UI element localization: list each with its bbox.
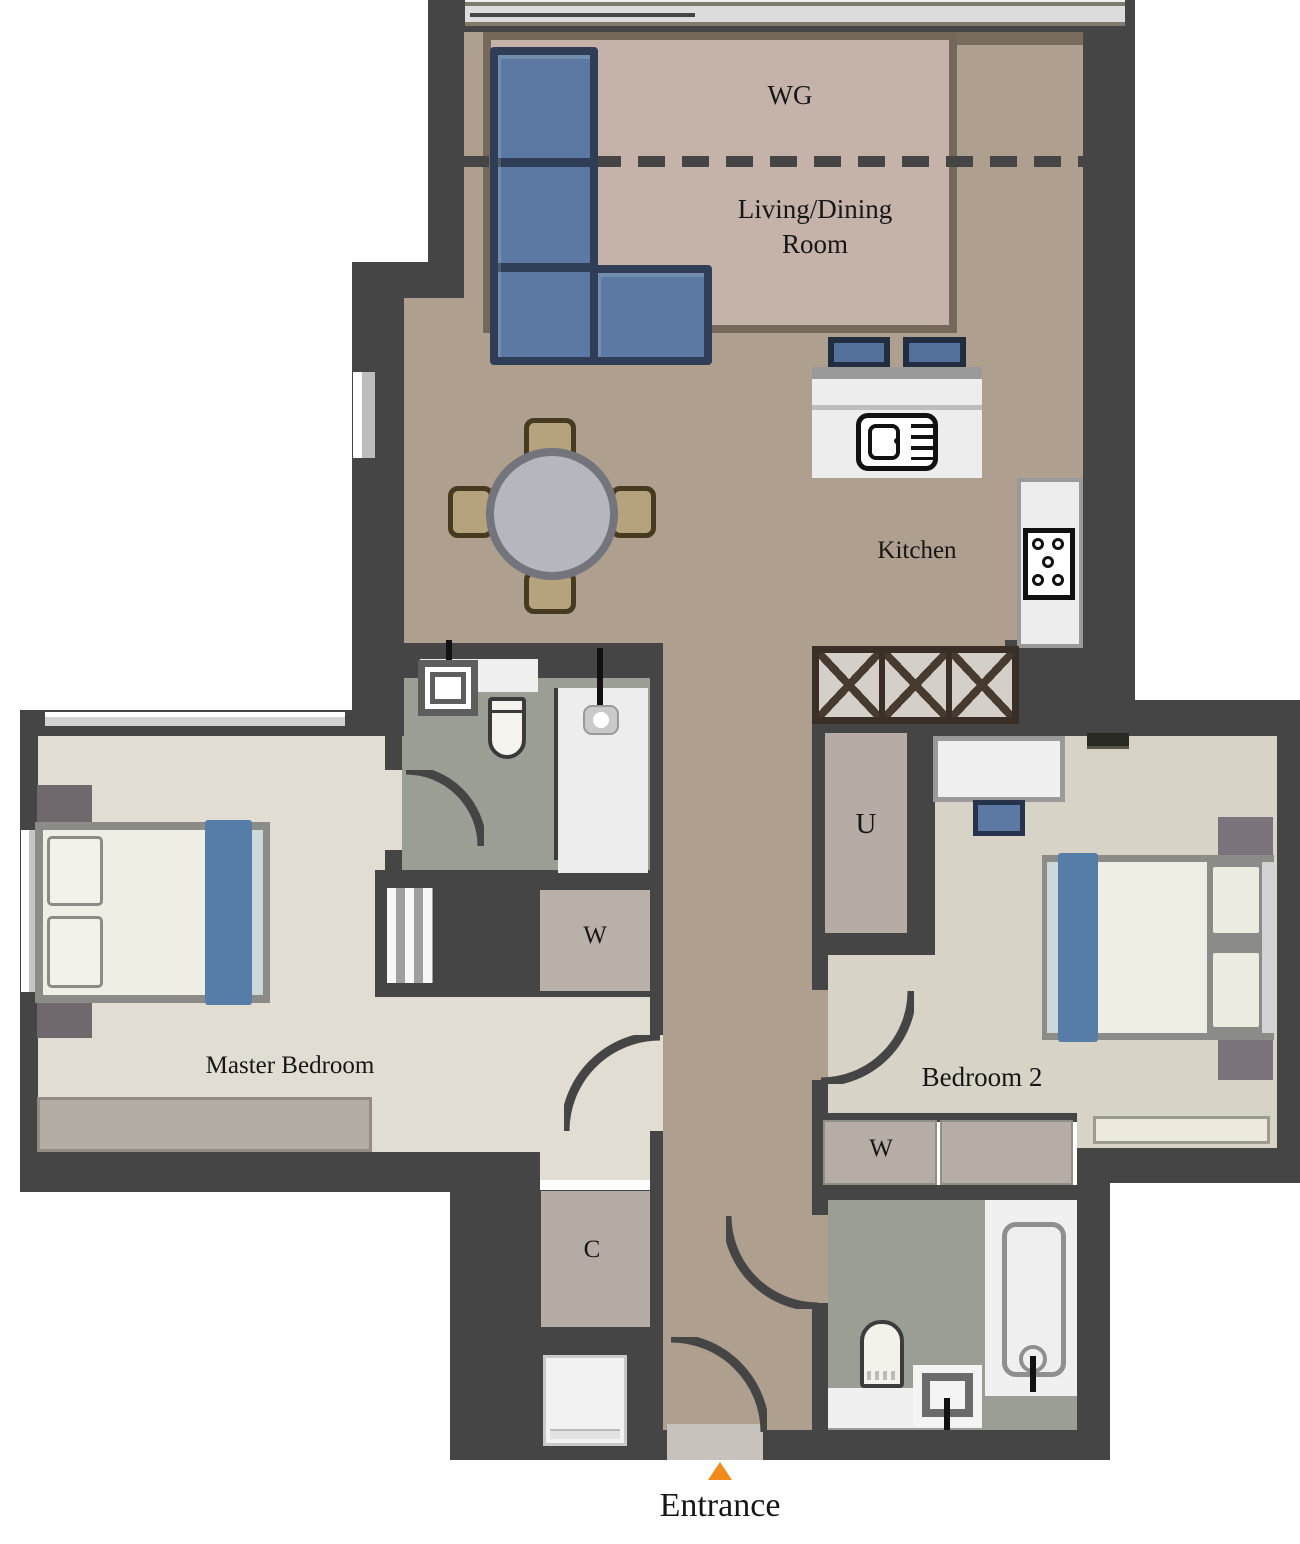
wall-shelf (1087, 733, 1129, 749)
wall-bedroom2-top (1135, 700, 1300, 736)
wall-bedroom2-right (1277, 700, 1300, 1183)
living-label-line2: Room (665, 227, 965, 262)
wall-bath-right (1077, 1180, 1110, 1460)
desk (933, 736, 1065, 802)
master-bed-runner (205, 820, 252, 1005)
shower-divider (554, 688, 558, 860)
cabinet-x-cell (819, 653, 885, 717)
sink-drainer-lines (911, 424, 933, 460)
wardrobe-bedroom2-right (940, 1120, 1073, 1185)
room-label-wg: WG (690, 80, 890, 111)
living-label-line1: Living/Dining (665, 192, 965, 227)
room-label-bedroom2: Bedroom 2 (857, 1062, 1107, 1093)
bathroom-faucet-stub (944, 1398, 950, 1430)
entrance-marker-icon (708, 1462, 732, 1480)
toilet (860, 1320, 904, 1388)
master-door-arc (564, 1035, 662, 1133)
room-label-wardrobe-bedroom2: W (831, 1135, 931, 1163)
ensuite-toilet (488, 697, 526, 759)
pillow (47, 916, 103, 988)
entrance-label: Entrance (570, 1487, 870, 1525)
base-cabinets (812, 646, 1019, 724)
wall-left-jut (352, 262, 464, 298)
sofa-cushions (498, 55, 590, 357)
wall-left-upper (428, 0, 464, 270)
hallway-floor (663, 650, 812, 1432)
nightstand (37, 1002, 92, 1038)
bathroom-door-arc (726, 1215, 820, 1309)
wall-utility-bottom (812, 933, 935, 955)
wall-right-upper (1083, 0, 1135, 660)
wall-bench-bottom (1077, 1148, 1300, 1183)
washing-machine-panel (550, 1429, 620, 1439)
wall-entry-left (450, 1190, 540, 1460)
cabinet-x-cell (885, 653, 951, 717)
stove-hob-icon (1023, 528, 1075, 600)
living-floor-left-extension (404, 296, 464, 650)
ensuite-door-arc (402, 770, 484, 852)
burner (1032, 574, 1044, 586)
bar-stool (903, 337, 966, 368)
burner (1052, 538, 1064, 550)
ensuite-sink-basin (430, 672, 466, 704)
corner-sofa (490, 47, 598, 365)
room-label-closet: C (542, 1236, 642, 1264)
bed2-mattress (1097, 862, 1207, 1033)
pillow (47, 836, 103, 906)
wall-wardrobe2-bottom (812, 1185, 1077, 1200)
washing-machine (543, 1355, 627, 1446)
toilet-seat-lines (867, 1371, 897, 1380)
sofa-cushion (598, 273, 704, 357)
room-label-utility: U (816, 808, 916, 841)
sink-icon (856, 413, 938, 471)
wall-below-kitchen (1005, 640, 1135, 736)
bed2-throw (1047, 862, 1058, 1033)
shower-head-center (593, 712, 609, 728)
window-master-top (45, 712, 345, 726)
bar-stool (828, 337, 890, 368)
nightstand (1218, 1033, 1273, 1080)
room-label-wardrobe-master: W (545, 922, 645, 950)
desk-chair (973, 800, 1025, 836)
window-top-sill (465, 22, 1125, 26)
toilet-tank-line (492, 710, 522, 713)
room-label-master-bedroom: Master Bedroom (140, 1052, 440, 1080)
entrance-door-arc (670, 1337, 767, 1434)
bed2-runner (1058, 853, 1098, 1042)
dining-table (486, 448, 618, 580)
ensuite-sink (418, 660, 478, 716)
burner (1032, 538, 1044, 550)
shower-head-icon (583, 705, 619, 735)
room-label-living: Living/Dining Room (665, 192, 965, 262)
master-bed-throw (252, 830, 263, 995)
nightstand (37, 785, 92, 825)
doorway-ensuite (385, 770, 402, 850)
floor-plan: WG Living/Dining Room Kitchen U W Master… (0, 0, 1300, 1544)
wall-master-bottom (20, 1152, 540, 1192)
pillow (1210, 950, 1262, 1030)
shower-head-stub (597, 648, 603, 710)
bench (1093, 1116, 1270, 1144)
window-living-left (353, 372, 375, 458)
room-label-kitchen: Kitchen (817, 537, 1017, 565)
burner (1042, 556, 1054, 568)
window-top-mullion (470, 13, 695, 17)
sink-faucet-dot (894, 438, 900, 444)
bathtub-faucet-stub (1030, 1356, 1036, 1392)
shelf-closet-stripes (387, 888, 433, 983)
bed2-headboard (1262, 862, 1274, 1033)
pillow (1210, 864, 1262, 936)
dresser (37, 1097, 372, 1152)
sofa-chaise-section (590, 265, 712, 365)
burner (1052, 574, 1064, 586)
cabinet-x-cell (952, 653, 1012, 717)
